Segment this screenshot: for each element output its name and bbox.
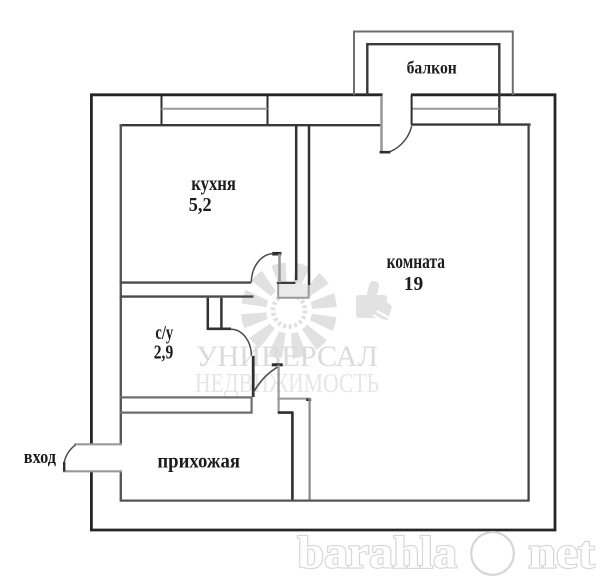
svg-text:net: net bbox=[529, 527, 596, 576]
svg-text:прихожая: прихожая bbox=[157, 451, 240, 473]
svg-text:НЕДВИЖИМОСТЬ: НЕДВИЖИМОСТЬ bbox=[195, 368, 379, 398]
svg-text:19: 19 bbox=[404, 273, 423, 295]
svg-text:5,2: 5,2 bbox=[189, 194, 212, 216]
svg-text:комната: комната bbox=[387, 251, 445, 273]
svg-text:вход: вход bbox=[24, 447, 57, 468]
svg-text:кухня: кухня bbox=[191, 173, 236, 195]
svg-text:балкон: балкон bbox=[407, 58, 457, 78]
svg-text:barahla: barahla bbox=[298, 527, 458, 576]
svg-text:2,9: 2,9 bbox=[154, 342, 173, 364]
